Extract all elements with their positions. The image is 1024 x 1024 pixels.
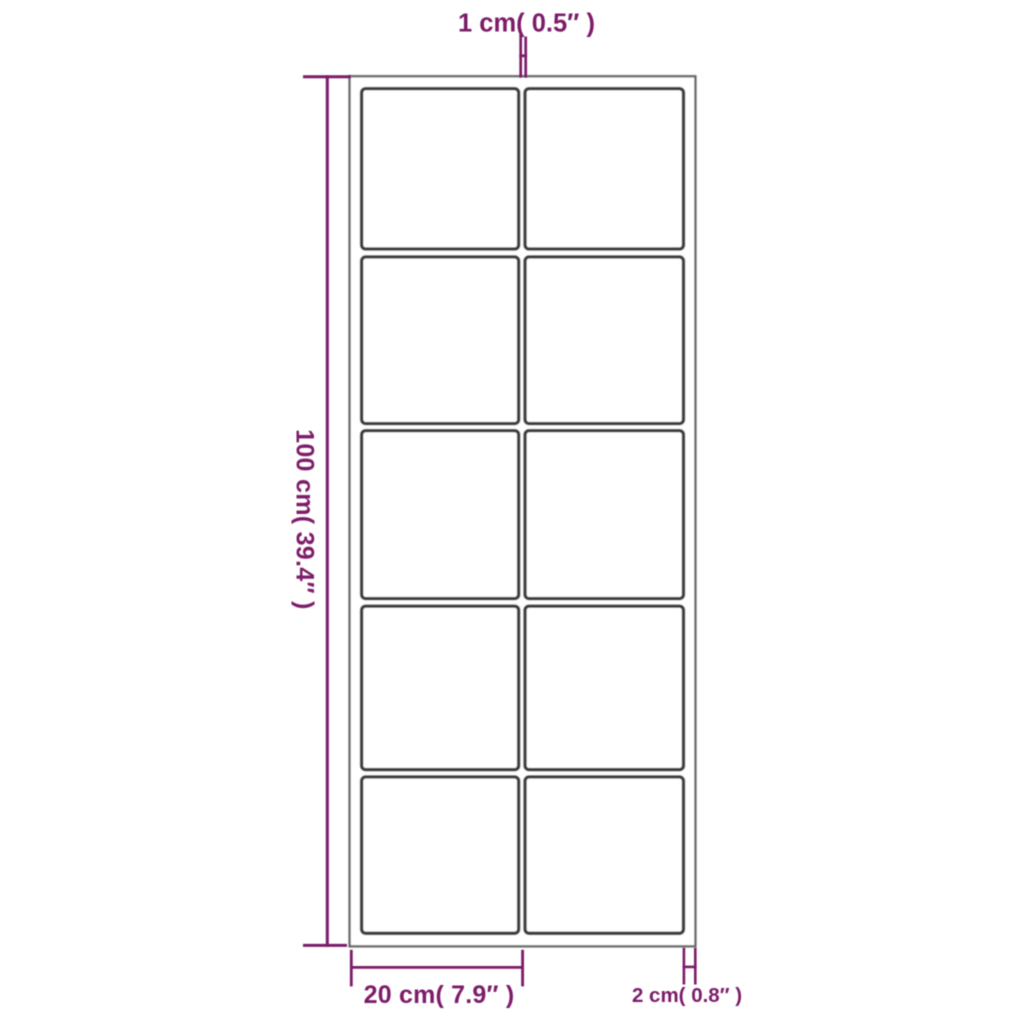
svg-text:20 cm( 7.9″ ): 20 cm( 7.9″ ): [364, 981, 515, 1009]
svg-text:100 cm( 39.4″ ): 100 cm( 39.4″ ): [291, 429, 319, 609]
svg-text:1 cm( 0.5″ ): 1 cm( 0.5″ ): [458, 10, 595, 38]
svg-text:2 cm( 0.8″ ): 2 cm( 0.8″ ): [632, 984, 742, 1007]
